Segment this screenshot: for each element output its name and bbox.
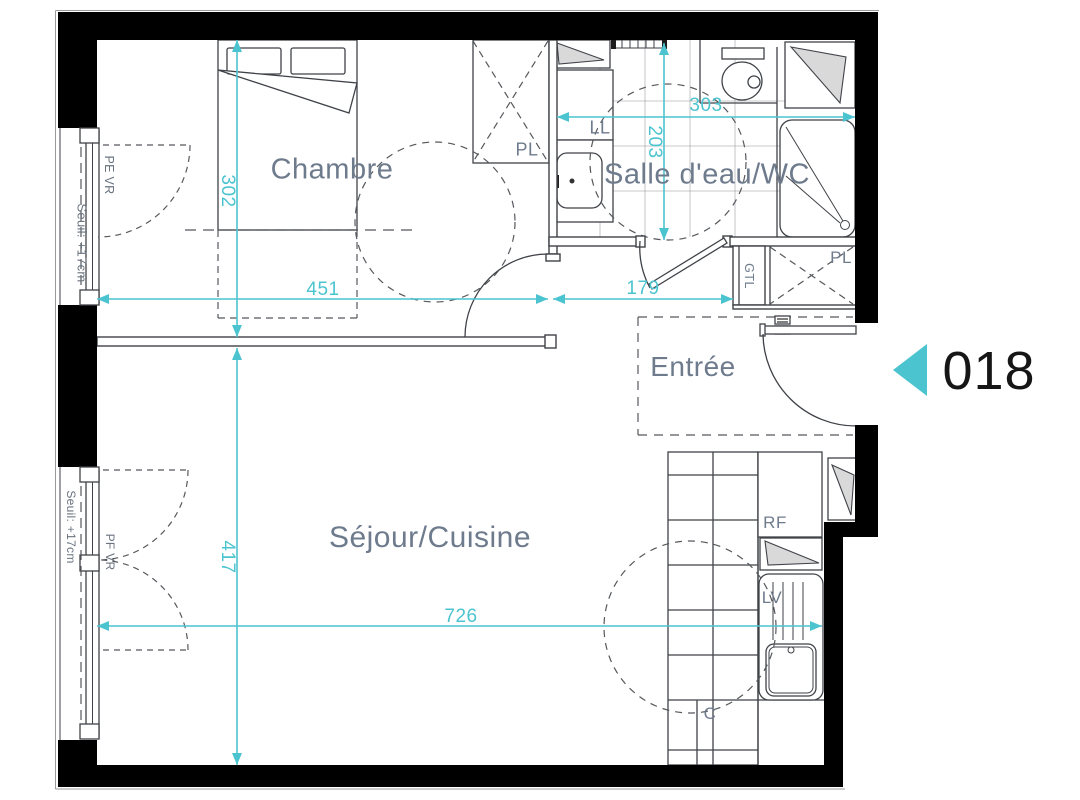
washbasin [557, 153, 602, 208]
bathroom-door-leaf [649, 238, 727, 289]
window-note-top: PE VR [102, 155, 116, 194]
label-technical-duct: GTL [742, 263, 756, 289]
floor-plan: Chambre Salle d'eau/WC Entrée Séjour/Cui… [0, 0, 1080, 800]
doors [465, 238, 856, 426]
room-label-entry: Entrée [650, 351, 736, 383]
radiator [611, 39, 667, 49]
living-window [60, 467, 188, 740]
room-label-bathroom: Salle d'eau/WC [604, 159, 810, 192]
room-label-bedroom: Chambre [271, 154, 394, 187]
label-dishwasher: LV [762, 588, 783, 608]
label-closet-entry: PL [830, 248, 852, 268]
label-closet-bedroom: PL [515, 140, 538, 161]
room-label-living-kitchen: Séjour/Cuisine [329, 521, 531, 555]
dim-bedroom-width: 451 [306, 279, 339, 301]
label-washing-machine: LL [589, 118, 610, 139]
toilet [722, 48, 764, 100]
label-fridge: RF [763, 513, 787, 533]
window-note-bottom: PF VR [103, 534, 117, 571]
dim-bathroom-depth: 203 [643, 125, 665, 158]
dim-living-depth: 417 [216, 540, 238, 573]
entry-door-leaf [763, 326, 856, 334]
floor-plan-drawing [0, 0, 1080, 800]
threshold-note-bottom: Seuil: +17cm [64, 490, 78, 563]
dim-entry-width: 179 [626, 278, 659, 300]
dim-living-width: 726 [444, 606, 477, 628]
unit-number: 018 [942, 340, 1035, 402]
threshold-note-top: Seuil: +17cm [75, 203, 90, 282]
unit-pointer-icon [893, 344, 927, 396]
dim-bathroom-width: 303 [689, 95, 722, 117]
label-cooktop: C [704, 704, 717, 724]
dim-bedroom-depth: 302 [216, 174, 238, 207]
bedroom-door-arc [465, 254, 548, 337]
entry-door-arc [763, 334, 856, 426]
pillow [291, 48, 345, 74]
